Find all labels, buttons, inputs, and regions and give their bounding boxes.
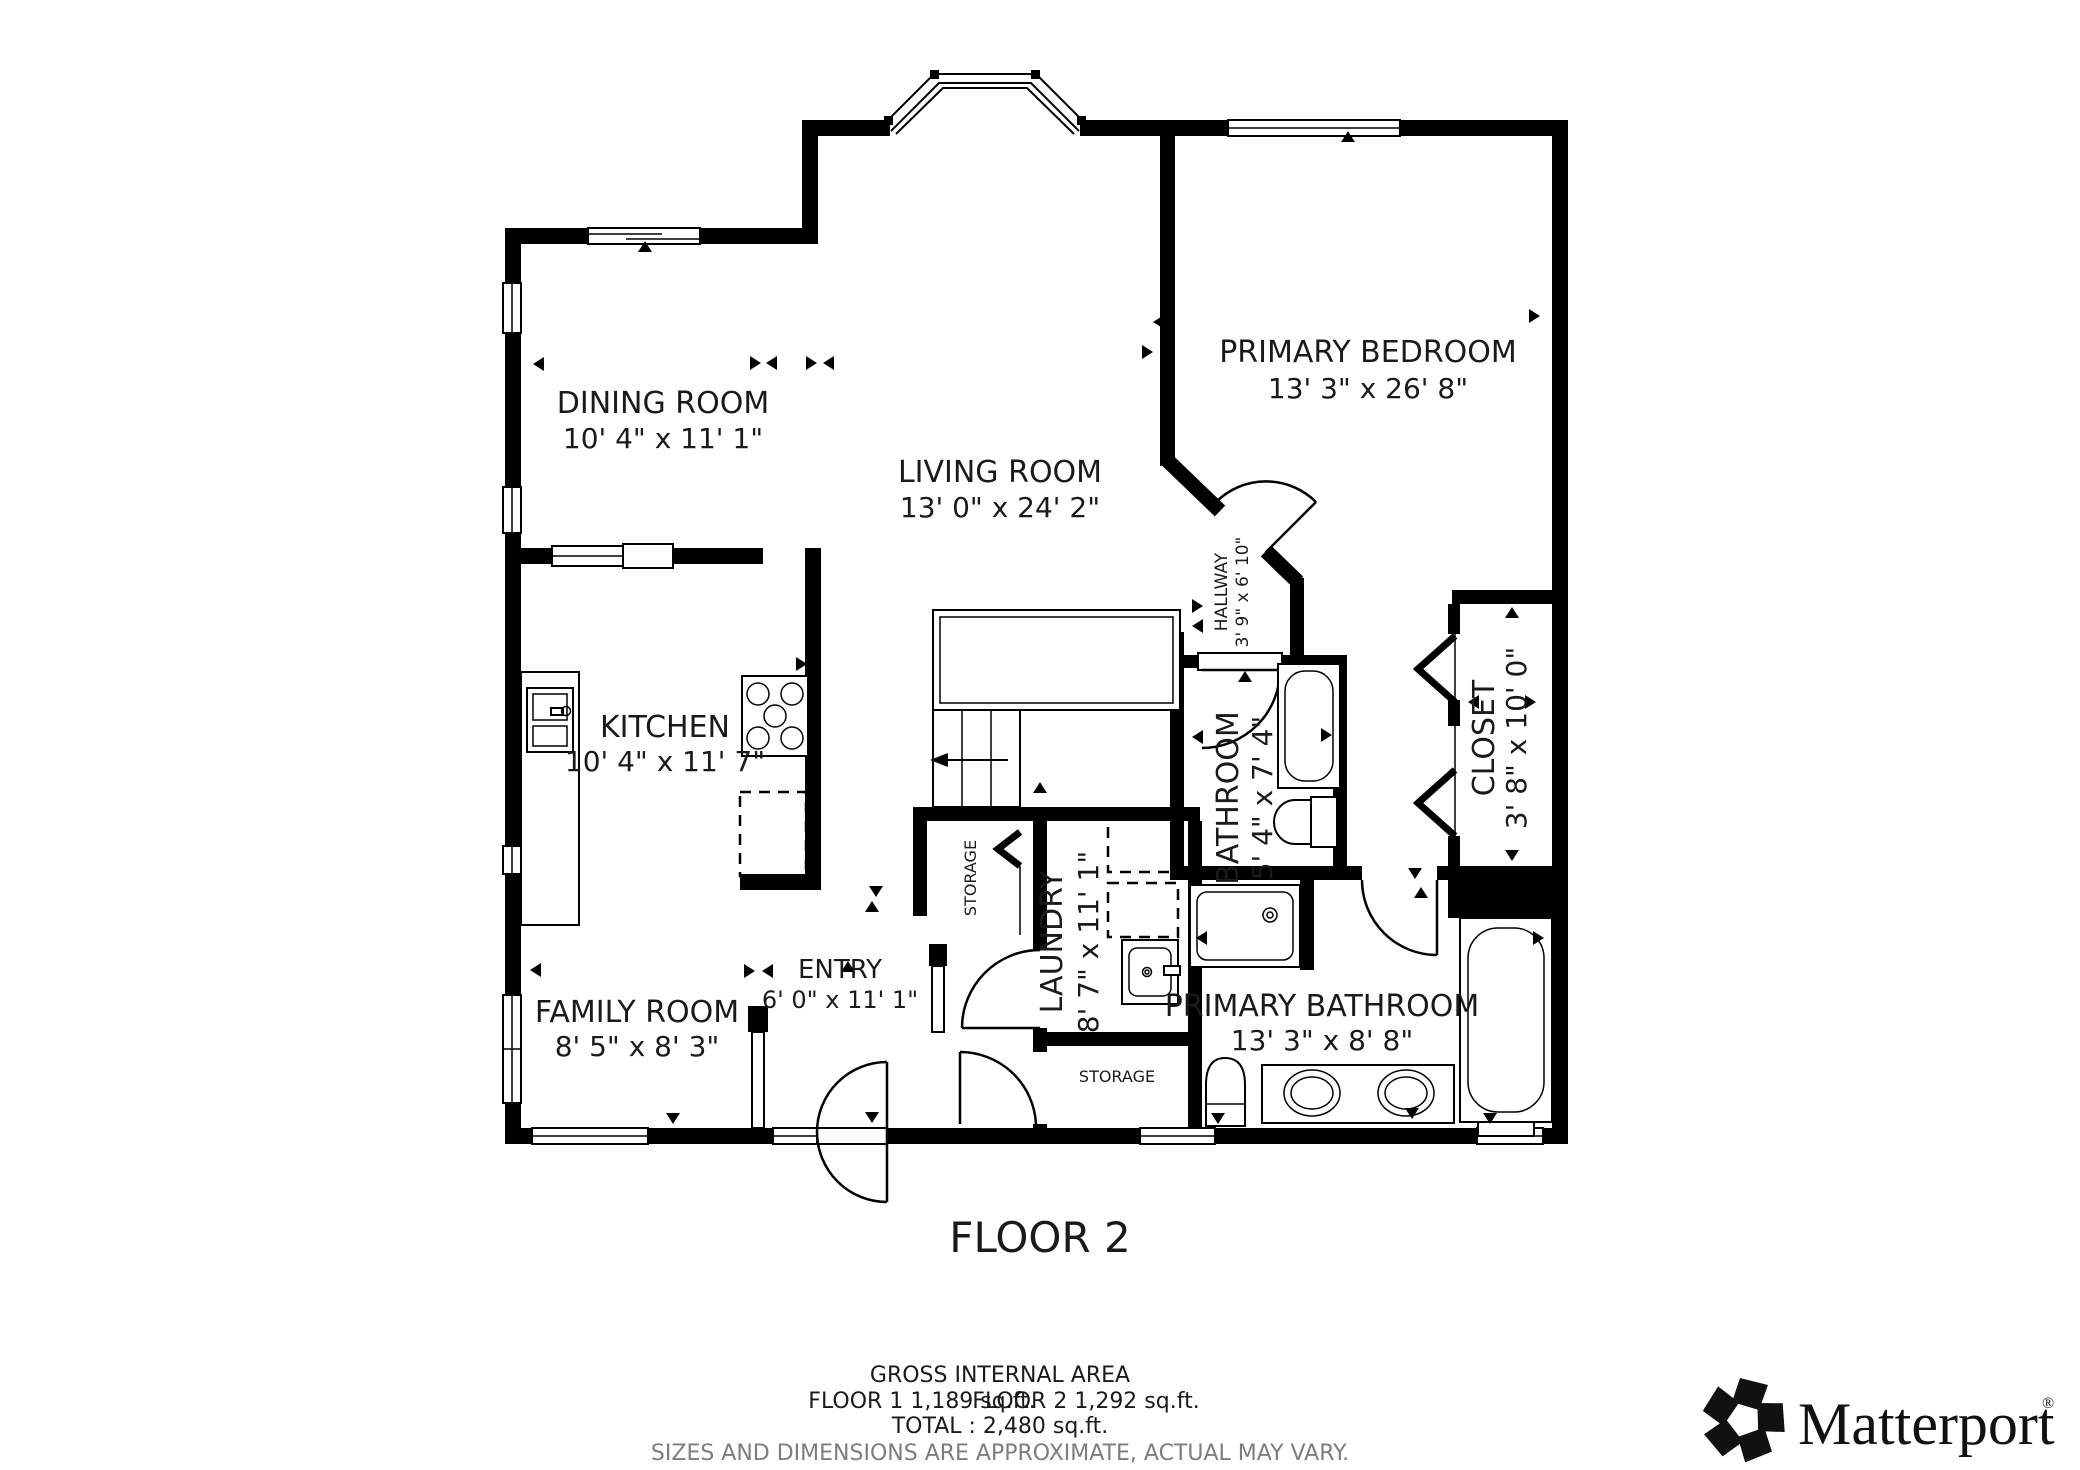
bathroom-label: BATHROOM [1211, 711, 1246, 885]
matterport-logo: Matterport ® [1700, 1378, 2055, 1468]
storage-door [960, 1052, 1036, 1124]
matterport-pinwheel-icon [1700, 1378, 1791, 1468]
window [503, 995, 521, 1103]
bay-window [884, 70, 1086, 134]
gross-internal-area-title: GROSS INTERNAL AREA [870, 1363, 1130, 1388]
stove [742, 676, 808, 756]
storage-bifold-door [998, 832, 1020, 935]
registered-trademark: ® [2042, 1395, 2054, 1412]
kitchen-label: KITCHEN [600, 710, 730, 745]
total-area: TOTAL : 2,480 sq.ft. [891, 1414, 1109, 1439]
family-room-dims: 8' 5" x 8' 3" [555, 1030, 720, 1063]
front-door [817, 1062, 887, 1202]
primary-bedroom-label: PRIMARY BEDROOM [1219, 335, 1517, 370]
stairwell [930, 610, 1180, 807]
pass-through-opening [552, 546, 623, 566]
floor-title: FLOOR 2 [949, 1213, 1130, 1262]
toilet [1274, 797, 1337, 847]
bathroom-dims: 5' 4" x 7' 4" [1246, 716, 1279, 881]
storage-upper-label: STORAGE [961, 840, 980, 916]
kitchen-dims: 10' 4" x 11' 7" [565, 745, 765, 778]
toilet [1206, 1058, 1245, 1126]
hallway-dims: 3' 9" x 6' 10" [1233, 537, 1253, 648]
laundry-dims: 8' 7" x 11' 1" [1072, 851, 1105, 1033]
storage-lower-label: STORAGE [1079, 1067, 1155, 1086]
window [1140, 1128, 1215, 1144]
family-room-label: FAMILY ROOM [535, 995, 739, 1030]
logo-wordmark: Matterport [1798, 1391, 2055, 1457]
washer-dashed-outline [1108, 818, 1178, 872]
bedroom-door [1216, 481, 1316, 552]
primary-bathroom-label: PRIMARY BATHROOM [1165, 989, 1480, 1024]
window [1228, 120, 1400, 136]
window [503, 846, 521, 874]
faucet-icon [1164, 966, 1180, 975]
stairs [930, 710, 1020, 807]
bathtub [1278, 664, 1340, 788]
shower [1190, 885, 1300, 967]
window [588, 228, 700, 244]
primary-bathroom-door [1362, 880, 1437, 955]
stair-void-railing [933, 610, 1180, 710]
window [773, 1128, 817, 1144]
dryer-dashed-outline [1108, 883, 1178, 937]
appliance-dashed-outline [740, 792, 806, 876]
vanity-double-sink [1262, 1065, 1454, 1123]
hallway-label: HALLWAY [1212, 552, 1232, 631]
closet-dims: 3' 8" x 10' 0" [1500, 647, 1533, 829]
closet-label: CLOSET [1467, 679, 1502, 796]
window [503, 283, 521, 333]
window [532, 1128, 648, 1144]
primary-bedroom-dims: 13' 3" x 26' 8" [1268, 372, 1468, 405]
primary-bathtub [1460, 918, 1552, 1136]
laundry-door [962, 950, 1040, 1028]
cased-opening [623, 544, 673, 568]
footer: GROSS INTERNAL AREA FLOOR 1 1,189 sq.ft.… [651, 1363, 1349, 1466]
floor2-area: FLOOR 2 1,292 sq.ft. [972, 1389, 1199, 1414]
disclaimer-text: SIZES AND DIMENSIONS ARE APPROXIMATE, AC… [651, 1441, 1349, 1466]
dining-room-dims: 10' 4" x 11' 1" [563, 422, 763, 455]
laundry-label: LAUNDRY [1035, 870, 1070, 1013]
entry-dims: 6' 0" x 11' 1" [762, 986, 918, 1014]
closet-bifold-doors [1418, 604, 1460, 866]
tub-step [1478, 1122, 1534, 1136]
dining-room-label: DINING ROOM [557, 386, 769, 421]
living-room-dims: 13' 0" x 24' 2" [900, 491, 1100, 524]
window [503, 487, 521, 533]
primary-bathroom-dims: 13' 3" x 8' 8" [1231, 1024, 1413, 1057]
entry-label: ENTRY [798, 955, 882, 985]
floor-plan: DINING ROOM 10' 4" x 11' 1" LIVING ROOM … [0, 0, 2080, 1470]
bathroom-fixtures [1274, 664, 1340, 847]
living-room-label: LIVING ROOM [898, 455, 1102, 490]
laundry-fixtures [1108, 818, 1180, 1004]
kitchen-counter [521, 672, 579, 925]
